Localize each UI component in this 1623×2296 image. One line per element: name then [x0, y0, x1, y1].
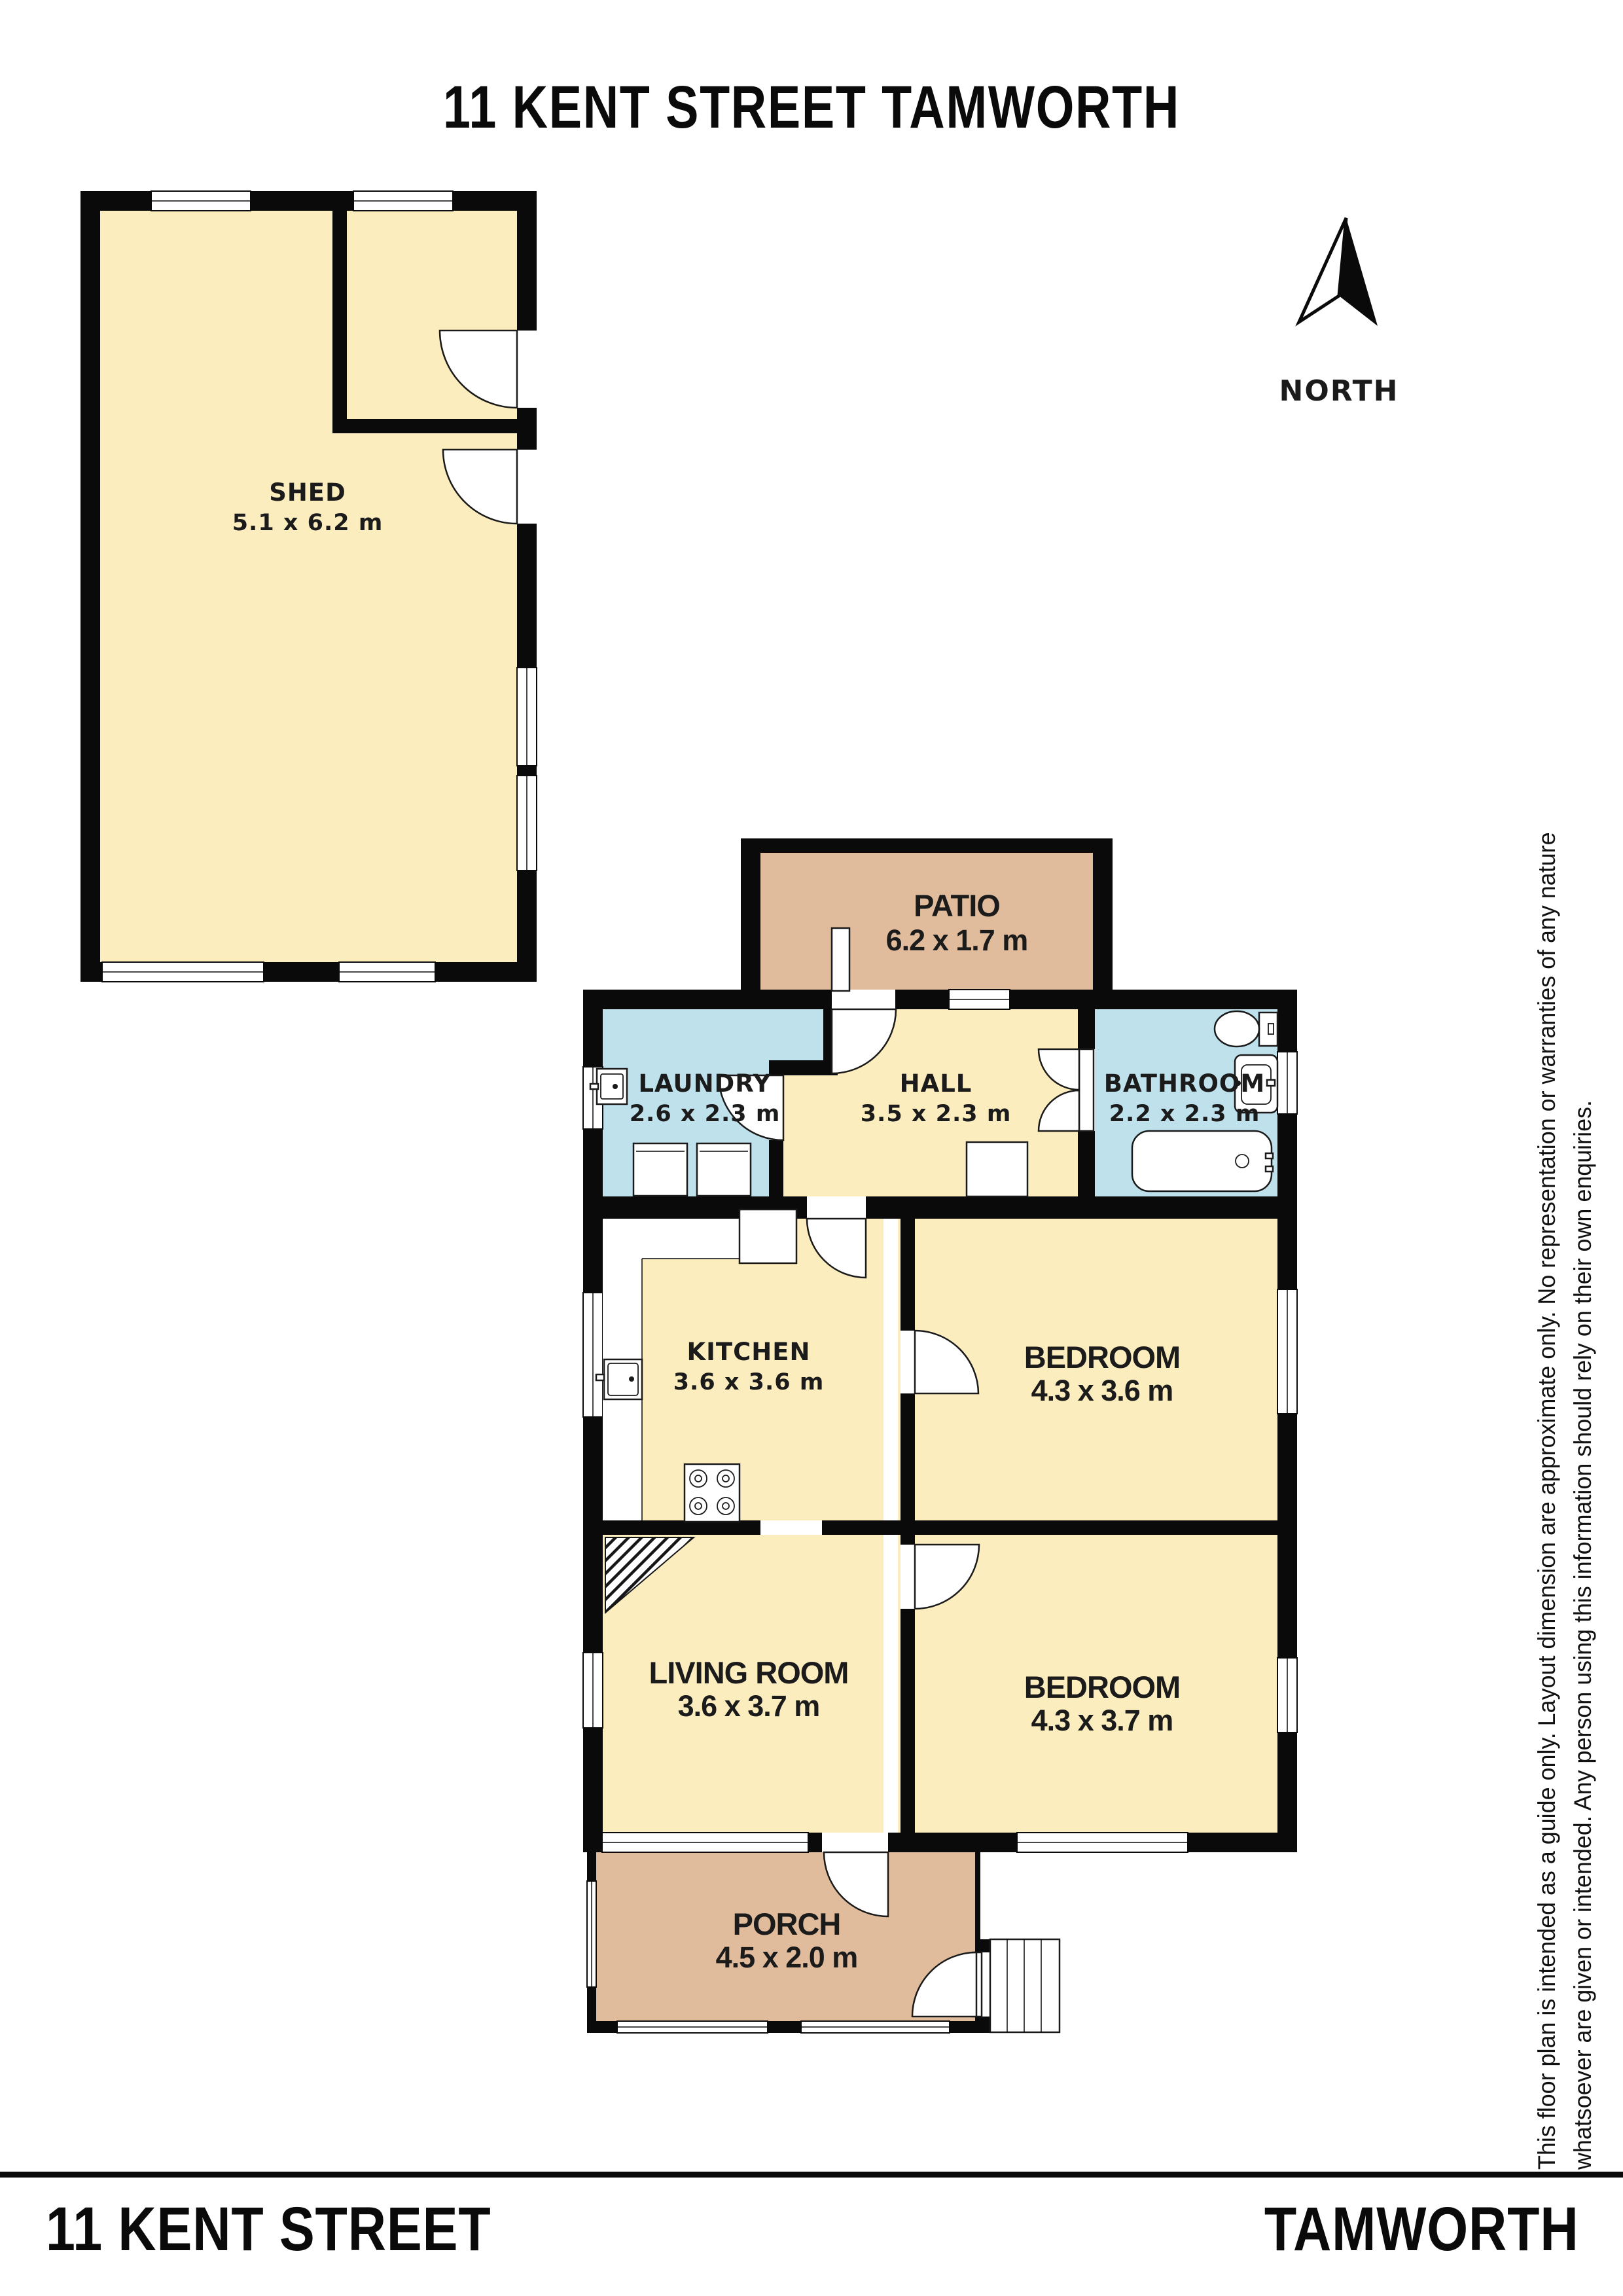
footer-divider [0, 2172, 1623, 2178]
patio-wall [1093, 838, 1113, 990]
inner-wall [769, 1140, 783, 1196]
north-label: NORTH [1279, 374, 1399, 408]
disclaimer-line: whatsoever are given or intended. Any pe… [1565, 646, 1601, 2170]
shed-floor [100, 211, 517, 962]
footer-street: 11 KENT STREET [46, 2194, 491, 2265]
patio-wall [741, 838, 760, 990]
door-opening [832, 990, 895, 1009]
room-label-patio: PATIO [914, 888, 1000, 923]
door-opening [517, 331, 537, 408]
porch-steps [990, 1939, 1060, 2032]
door-opening [807, 1196, 866, 1219]
room-label-bedroom2: BEDROOM [1024, 1670, 1180, 1704]
disclaimer-line: This floor plan is intended as a guide o… [1529, 646, 1565, 2170]
house-wall-top [583, 990, 1297, 1009]
kitchen-pantry [740, 1210, 796, 1263]
footer-city: TAMWORTH [1264, 2194, 1579, 2265]
kitchen-sink [604, 1359, 642, 1399]
room-label-bathroom: BATHROOM [1104, 1069, 1265, 1098]
door-leaf [832, 928, 849, 991]
room-dims-porch: 4.5 x 2.0 m [716, 1941, 858, 1974]
north-arrow-icon: NORTH [1279, 218, 1399, 408]
door-opening [517, 450, 537, 524]
room-label-porch: PORCH [733, 1907, 841, 1941]
door-opening [901, 1545, 915, 1609]
shed-structure: SHED 5.1 x 6.2 m [80, 191, 537, 982]
room-label-shed: SHED [269, 478, 346, 507]
inner-wall [769, 1060, 838, 1075]
room-dims-bedroom2: 4.3 x 3.7 m [1031, 1704, 1173, 1737]
door-leaf [1079, 1049, 1094, 1131]
tap [590, 1084, 598, 1089]
inner-wall [583, 1520, 1297, 1535]
door-opening [822, 1833, 888, 1852]
shed-partition-wall [332, 211, 347, 419]
tap [1266, 1166, 1273, 1172]
shed-inner-room-wall [332, 419, 537, 433]
room-dims-living: 3.6 x 3.7 m [678, 1689, 820, 1723]
room-label-hall: HALL [900, 1069, 972, 1098]
room-label-bedroom1: BEDROOM [1024, 1340, 1180, 1374]
hall-floor [783, 1075, 838, 1196]
room-dims-kitchen: 3.6 x 3.6 m [673, 1369, 825, 1395]
room-label-living: LIVING ROOM [649, 1655, 849, 1690]
patio-structure: PATIO 6.2 x 1.7 m [741, 838, 1113, 990]
tap [596, 1374, 604, 1380]
disclaimer-text: This floor plan is intended as a guide o… [1529, 646, 1601, 2170]
tap [1266, 1153, 1273, 1158]
tap [1267, 1080, 1275, 1086]
room-dims-hall: 3.5 x 2.3 m [861, 1101, 1012, 1127]
hall-cabinet [967, 1142, 1027, 1196]
room-dims-bedroom1: 4.3 x 3.6 m [1031, 1374, 1173, 1407]
floorplan-page: 11 KENT STREET TAMWORTH [0, 0, 1623, 2296]
room-dims-bathroom: 2.2 x 2.3 m [1109, 1101, 1260, 1127]
room-dims-laundry: 2.6 x 2.3 m [630, 1101, 781, 1127]
room-label-laundry: LAUNDRY [638, 1069, 771, 1098]
toilet-bowl [1215, 1011, 1259, 1047]
bathtub [1132, 1131, 1272, 1191]
door-opening [901, 1331, 915, 1393]
patio-wall [741, 838, 1113, 853]
kitchen-counter [603, 1219, 740, 1259]
laundry-floor [603, 1009, 823, 1060]
room-label-kitchen: KITCHEN [687, 1338, 810, 1366]
wall-opening [760, 1520, 822, 1535]
room-dims-shed: 5.1 x 6.2 m [232, 510, 383, 536]
floorplan-canvas: SHED 5.1 x 6.2 m PATIO 6.2 x 1.7 m [0, 0, 1623, 2296]
room-dims-patio: 6.2 x 1.7 m [886, 924, 1028, 957]
inner-wall [583, 1196, 1297, 1219]
